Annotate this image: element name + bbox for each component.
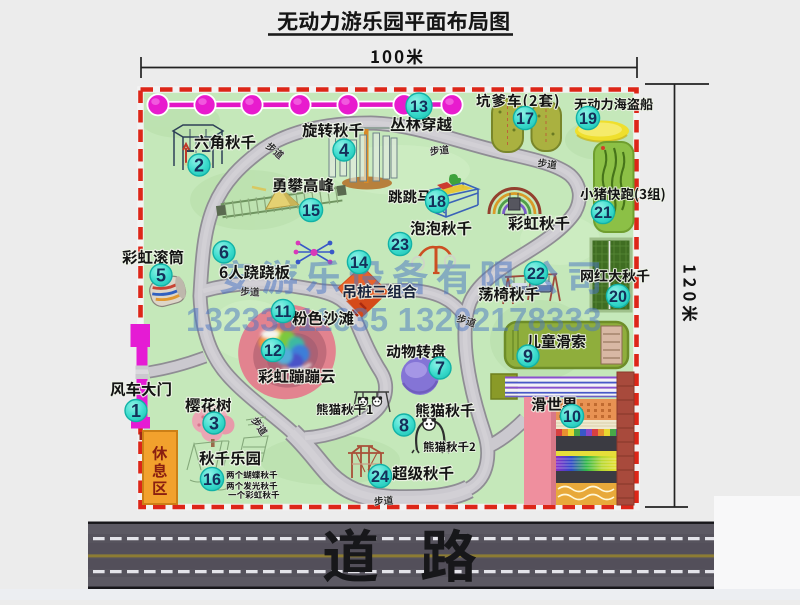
svg-text:10: 10 [563,408,581,426]
svg-text:11: 11 [274,303,291,321]
svg-text:24: 24 [371,468,389,486]
svg-text:15: 15 [302,202,320,220]
svg-text:13: 13 [410,98,428,116]
svg-text:22: 22 [527,265,545,283]
svg-text:20: 20 [609,288,627,306]
svg-text:14: 14 [350,254,368,272]
svg-text:4: 4 [339,140,349,160]
svg-text:13233811635 13202178333: 13233811635 13202178333 [186,301,602,338]
svg-text:18: 18 [428,193,446,211]
svg-text:1: 1 [131,401,141,421]
svg-text:17: 17 [516,110,534,128]
svg-text:9: 9 [523,346,533,366]
svg-text:7: 7 [435,358,445,378]
svg-text:23: 23 [391,236,409,254]
svg-text:3: 3 [209,413,219,433]
svg-text:5: 5 [156,265,166,285]
svg-text:8: 8 [399,415,409,435]
svg-text:21: 21 [594,204,612,222]
svg-text:19: 19 [579,110,597,128]
svg-text:12: 12 [264,342,282,360]
svg-text:6: 6 [219,242,229,262]
svg-text:2: 2 [194,155,204,175]
svg-text:16: 16 [203,471,221,489]
